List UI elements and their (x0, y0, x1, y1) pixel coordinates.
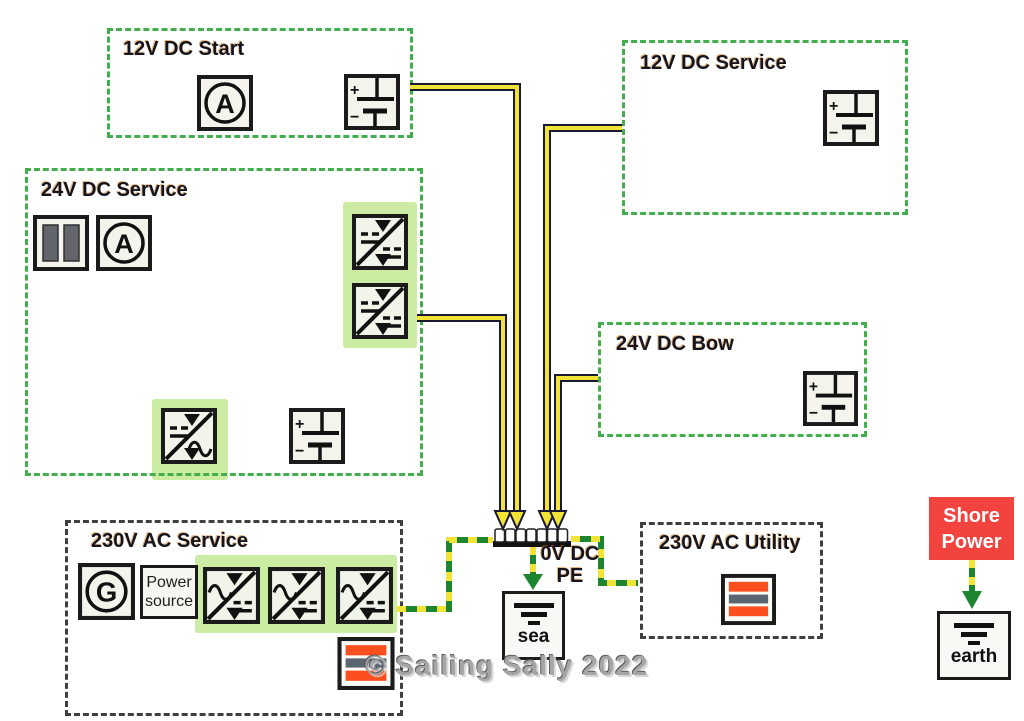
group-title: 12V DC Service (640, 52, 787, 75)
group-title: 24V DC Bow (616, 333, 734, 356)
earth-wire-ac-service (397, 540, 493, 609)
dc-return-wires (410, 87, 622, 513)
battery-icon (803, 371, 858, 426)
busbar-label-line1: 0V DC (527, 543, 613, 565)
battery-bank-icon (33, 215, 89, 271)
watermark: © Sailing Sally 2022 (365, 650, 648, 682)
wire-12v-start-to-busbar (410, 87, 517, 513)
sea-label: sea (518, 626, 550, 648)
busbar-label: 0V DC PE (527, 543, 613, 587)
ac-load-icon (721, 572, 776, 627)
charger-icon (203, 567, 260, 624)
dc-dc-converter-icon (352, 283, 408, 339)
battery-icon (289, 408, 345, 464)
ground-symbol-icon (954, 623, 994, 645)
dc-dc-converter-icon (352, 214, 408, 270)
power-source-line1: Power (143, 573, 195, 592)
group-title: 24V DC Service (41, 179, 188, 202)
group-title: 230V AC Service (91, 530, 248, 553)
power-source-line2: source (143, 592, 195, 611)
inverter-icon (161, 408, 217, 464)
battery-icon (344, 74, 400, 130)
ammeter-icon (197, 75, 253, 131)
group-title: 12V DC Start (123, 38, 244, 61)
earth-ground-box: earth (937, 611, 1011, 680)
wire-24v-bow-to-busbar (558, 378, 598, 513)
generator-icon (78, 563, 135, 620)
battery-icon (823, 90, 879, 146)
earth-arrow (962, 591, 982, 609)
wire-24v-service-to-busbar (417, 318, 503, 513)
wire-12v-service-to-busbar (547, 128, 622, 513)
busbar-arrows (495, 511, 566, 529)
ammeter-icon (96, 215, 152, 271)
charger-icon (336, 567, 393, 624)
shore-power-box: Shore Power (929, 497, 1014, 560)
busbar-label-line2: PE (527, 565, 613, 587)
earth-label: earth (951, 646, 997, 668)
charger-icon (268, 567, 325, 624)
power-source-box: Power source (140, 565, 198, 619)
ground-symbol-icon (514, 603, 554, 625)
shore-power-line1: Shore (929, 503, 1014, 529)
wiring-diagram: + − A G (0, 0, 1024, 721)
group-title: 230V AC Utility (659, 532, 801, 555)
shore-power-line2: Power (929, 529, 1014, 555)
